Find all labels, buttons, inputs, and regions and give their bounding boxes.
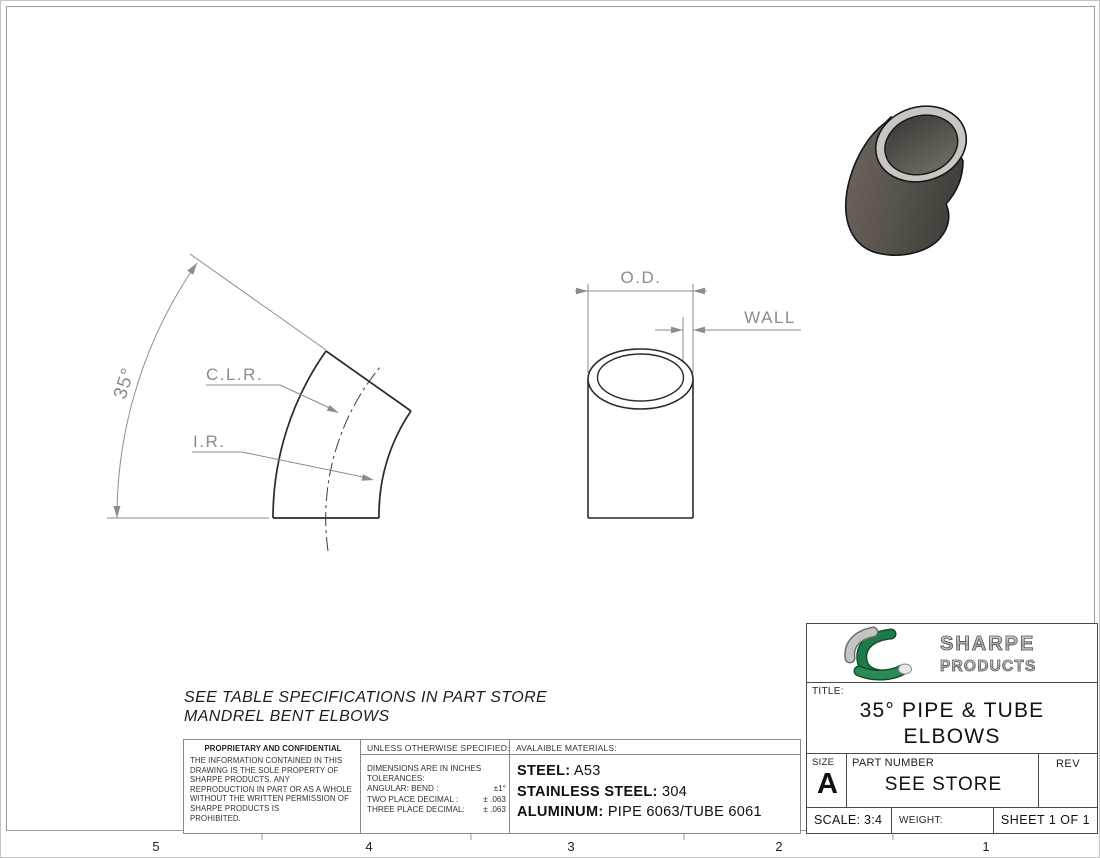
drawing-sheet: 35° C.L.R. I.R. [0, 0, 1100, 858]
proprietary-line: PROHIBITED. [190, 814, 358, 824]
logo-tube-mark [850, 632, 912, 675]
drawing-title-line1: 35° PIPE & TUBE [807, 698, 1097, 723]
weight-cell: WEIGHT: [891, 807, 996, 834]
material-label: ALUMINUM: [517, 804, 603, 820]
ir-arrow [362, 474, 374, 481]
note-line-2: MANDREL BENT ELBOWS [184, 707, 547, 726]
material-label: STEEL: [517, 763, 570, 779]
tolerances-header: UNLESS OTHERWISE SPECIFIED: [361, 740, 511, 755]
material-value: A53 [574, 763, 601, 779]
scale-cell: SCALE: 3:4 [806, 807, 894, 834]
sheet-of-value: SHEET 1 OF 1 [994, 808, 1097, 827]
proprietary-line: REPRODUCTION IN PART OR AS A WHOLE [190, 785, 358, 795]
proprietary-title: PROPRIETARY AND CONFIDENTIAL [184, 740, 362, 753]
material-row: STEEL: A53 [517, 761, 800, 782]
proprietary-line: WITHOUT THE WRITTEN PERMISSION OF [190, 794, 358, 804]
drawing-title-line2: ELBOWS [807, 724, 1097, 749]
scale-value: SCALE: 3:4 [807, 808, 893, 827]
clr-label: C.L.R. [206, 365, 263, 384]
weight-label: WEIGHT: [892, 808, 995, 826]
zone-number-2: 2 [764, 839, 794, 854]
tolerance-line: TOLERANCES: [367, 774, 506, 784]
tolerances-block: UNLESS OTHERWISE SPECIFIED: DIMENSIONS A… [360, 739, 512, 834]
wall-arrow-right [693, 327, 705, 334]
title-label: TITLE: [807, 683, 1097, 697]
note-line-1: SEE TABLE SPECIFICATIONS IN PART STORE [184, 688, 547, 707]
proprietary-line: SHARPE PRODUCTS IS [190, 804, 358, 814]
rev-cell: REV [1038, 753, 1098, 810]
ir-label: I.R. [193, 432, 225, 451]
proprietary-block: PROPRIETARY AND CONFIDENTIAL THE INFORMA… [183, 739, 363, 834]
tolerance-row: ANGULAR: BEND : ±1° [367, 784, 506, 794]
proprietary-line: THE INFORMATION CONTAINED IN THIS [190, 756, 358, 766]
zone-number-1: 1 [971, 839, 1001, 854]
elbow-centerline [326, 366, 381, 551]
clr-arrow [327, 405, 339, 413]
materials-list: STEEL: A53 STAINLESS STEEL: 304 ALUMINUM… [510, 755, 800, 823]
tolerance-value: ±1° [494, 784, 506, 794]
tolerance-line: DIMENSIONS ARE IN INCHES [367, 764, 506, 774]
angle-dimension-label: 35° [110, 365, 140, 402]
size-label: SIZE [807, 754, 848, 768]
size-cell: SIZE A [806, 753, 849, 810]
tolerance-row: TWO PLACE DECIMAL : ± .063 [367, 795, 506, 805]
size-value: A [807, 768, 848, 801]
tolerance-label: ANGULAR: BEND : [367, 784, 438, 794]
material-value: 304 [662, 784, 687, 800]
part-number-label: PART NUMBER [847, 754, 1040, 769]
elbow-3d-render [846, 95, 976, 255]
od-label: O.D. [621, 268, 662, 287]
tolerance-label: TWO PLACE DECIMAL : [367, 795, 458, 805]
tolerance-value: ± .063 [483, 805, 506, 815]
proprietary-line: SHARPE PRODUCTS. ANY [190, 775, 358, 785]
tolerance-value: ± .063 [483, 795, 506, 805]
tolerance-label: THREE PLACE DECIMAL: [367, 805, 465, 815]
zone-number-3: 3 [556, 839, 586, 854]
proprietary-text: THE INFORMATION CONTAINED IN THIS DRAWIN… [184, 753, 362, 823]
angle-arrow-top [187, 263, 197, 275]
materials-header: AVALAIBLE MATERIALS: [510, 740, 800, 755]
sharpe-products-logo: SHARPE PRODUCTS [807, 624, 1095, 682]
zone-number-5: 5 [141, 839, 171, 854]
brand-name-bottom: PRODUCTS [940, 658, 1037, 675]
logo-cell: SHARPE PRODUCTS [806, 623, 1098, 685]
od-arrow-left [576, 288, 588, 295]
tube-end-view: O.D. WALL [575, 268, 801, 518]
tolerance-row: THREE PLACE DECIMAL: ± .063 [367, 805, 506, 815]
angle-arrow-bottom [114, 506, 121, 518]
wall-arrow-left [671, 327, 683, 334]
material-row: STAINLESS STEEL: 304 [517, 782, 800, 803]
brand-name-top: SHARPE [940, 633, 1035, 655]
zone-number-4: 4 [354, 839, 384, 854]
materials-block: AVALAIBLE MATERIALS: STEEL: A53 STAINLES… [509, 739, 801, 834]
wall-label: WALL [744, 308, 796, 327]
elbow-side-view: 35° C.L.R. I.R. [107, 254, 411, 551]
material-value: PIPE 6063/TUBE 6061 [608, 804, 762, 820]
rev-label: REV [1039, 754, 1097, 770]
sheet-of-cell: SHEET 1 OF 1 [993, 807, 1098, 834]
tolerances-body: DIMENSIONS ARE IN INCHES TOLERANCES: ANG… [361, 755, 511, 815]
material-label: STAINLESS STEEL: [517, 784, 658, 800]
drawing-note: SEE TABLE SPECIFICATIONS IN PART STORE M… [184, 688, 547, 726]
part-number-cell: PART NUMBER SEE STORE [846, 753, 1041, 810]
proprietary-line: DRAWING IS THE SOLE PROPERTY OF [190, 766, 358, 776]
od-arrow-right [693, 288, 705, 295]
title-cell: TITLE: 35° PIPE & TUBE ELBOWS [806, 682, 1098, 756]
material-row: ALUMINUM: PIPE 6063/TUBE 6061 [517, 802, 800, 823]
part-number-value: SEE STORE [847, 774, 1040, 796]
